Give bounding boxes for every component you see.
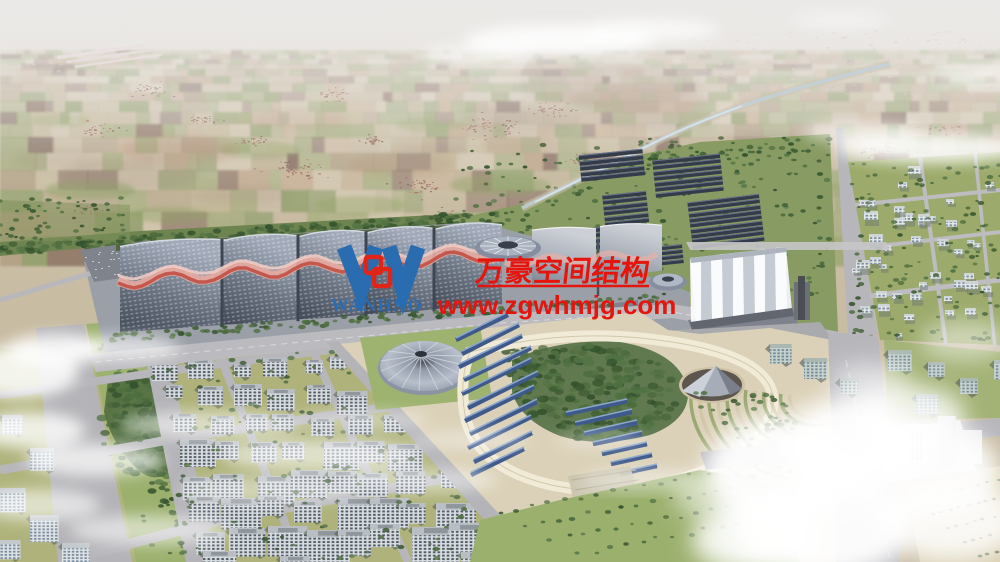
svg-text:www.zgwhmjg.com: www.zgwhmjg.com: [437, 290, 677, 320]
svg-text:万豪空间结构: 万豪空间结构: [474, 254, 651, 288]
svg-text:WANHAO: WANHAO: [331, 295, 423, 315]
